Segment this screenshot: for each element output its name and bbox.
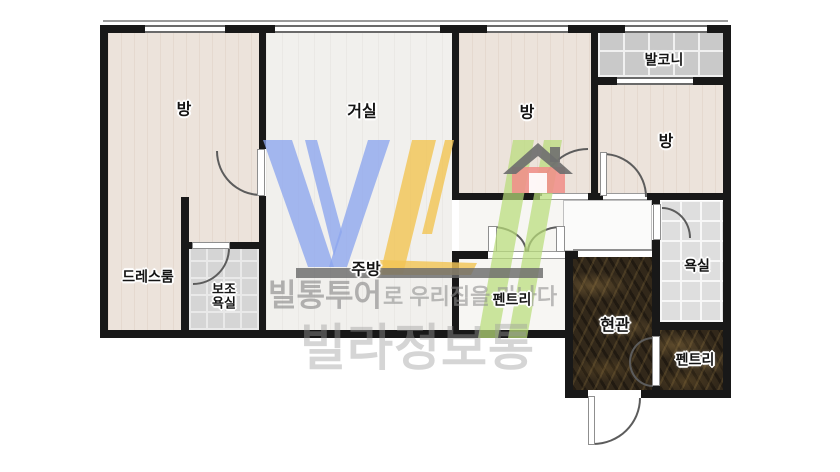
wall xyxy=(181,242,192,249)
door-leaf-pantry-hall-left xyxy=(488,226,497,252)
window xyxy=(625,25,707,33)
wall xyxy=(652,322,731,330)
door-leaf-bathroom xyxy=(653,204,661,240)
wall xyxy=(230,242,262,249)
room-label-dressroom: 드레스룸 xyxy=(122,270,174,285)
room-label-bedroom-1: 방 xyxy=(177,103,192,120)
door-leaf-pantry-entry xyxy=(652,336,660,386)
room-label-pantry-hall: 펜트리 xyxy=(493,293,532,308)
wall xyxy=(452,25,459,193)
wall xyxy=(181,197,189,338)
wall xyxy=(225,25,275,33)
room-label-kitchen: 주방 xyxy=(351,263,380,280)
wall xyxy=(440,25,487,33)
room-label-bedroom-3: 방 xyxy=(659,135,674,152)
window xyxy=(487,25,568,33)
room-label-balcony: 발코니 xyxy=(645,53,684,68)
wall xyxy=(652,240,660,330)
room-label-bedroom-2: 방 xyxy=(520,106,535,123)
room-label-pantry-entry: 펜트리 xyxy=(676,353,715,368)
room-label-living: 거실 xyxy=(347,105,376,122)
wall xyxy=(259,196,266,338)
entrance-step xyxy=(573,249,652,257)
shoe-closet xyxy=(563,200,652,251)
window xyxy=(145,25,225,33)
wall xyxy=(591,77,617,85)
wall xyxy=(565,251,573,338)
window xyxy=(617,77,693,85)
door-leaf-aux-bathroom xyxy=(192,242,230,249)
door-leaf-pantry-hall-right xyxy=(556,226,565,252)
door-leaf-bedroom-1 xyxy=(257,149,265,196)
facade-line xyxy=(103,20,728,22)
aux-bathroom-line2: 욕실 xyxy=(212,295,236,310)
wall xyxy=(591,25,598,193)
door-sill-pantry-hall xyxy=(488,251,565,259)
door-arc-main-entrance xyxy=(593,398,641,445)
room-label-aux-bathroom: 보조 욕실 xyxy=(212,282,236,309)
room-label-entrance: 현관 xyxy=(600,319,629,336)
floorplan-canvas: 빌통투어 로 우리집을 만나다 빌라정보통 방 거실 방 발코니 방 드레스룸 … xyxy=(0,0,840,472)
room-label-bathroom: 욕실 xyxy=(684,259,710,274)
wall xyxy=(565,330,573,398)
floor-dressroom xyxy=(108,242,181,330)
wall xyxy=(452,251,459,338)
wall xyxy=(652,386,660,398)
floor-living-kitchen xyxy=(266,33,452,330)
wall xyxy=(100,330,573,338)
door-leaf-bedroom-3 xyxy=(600,152,607,196)
door-leaf-main-entrance xyxy=(588,396,595,445)
wall xyxy=(693,77,731,85)
wall xyxy=(259,25,266,149)
window xyxy=(275,25,440,33)
wall xyxy=(565,390,588,398)
wall xyxy=(100,25,108,338)
wall xyxy=(452,193,540,200)
